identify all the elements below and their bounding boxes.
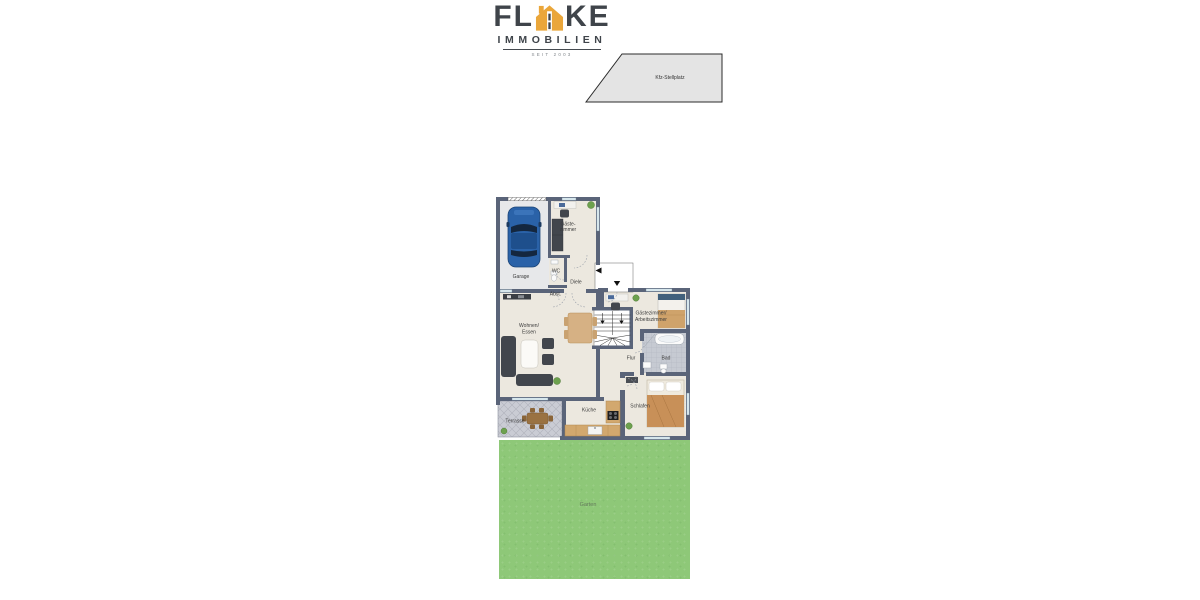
double-bed-icon	[647, 380, 684, 427]
sofa-icon	[516, 374, 553, 386]
window-icon	[687, 393, 690, 415]
label-storage: Abst.	[550, 292, 561, 298]
garden-area: Garten	[499, 440, 690, 579]
chair-icon	[564, 317, 569, 326]
plant-icon	[633, 295, 639, 301]
chair-icon	[611, 303, 620, 311]
label-guest-room-2: zimmer	[560, 227, 577, 233]
garage-door-icon	[508, 198, 546, 201]
brand-wordmark: FL KE	[492, 2, 612, 32]
car-icon	[507, 207, 542, 267]
plant-icon	[626, 423, 632, 429]
label-terrace: Terrasse	[505, 419, 524, 425]
window-icon	[646, 289, 672, 292]
window-icon	[500, 290, 512, 293]
window-icon	[597, 207, 600, 231]
parking-area: Kfz-Stellplatz	[584, 52, 726, 105]
garden-label: Garten	[580, 502, 597, 508]
label-entry-hall: Diele	[570, 280, 582, 286]
dining-table-icon	[568, 313, 592, 343]
stove-icon	[608, 411, 619, 420]
plant-icon	[554, 378, 561, 385]
armchair-icon	[542, 354, 554, 365]
brand-logo: FL KE IMMOBILIEN SEIT 2003	[492, 2, 612, 57]
sink-icon	[588, 427, 602, 435]
label-kitchen: Küche	[582, 408, 596, 414]
label-garage: Garage	[513, 274, 530, 280]
window-icon	[562, 198, 576, 201]
wordmark-right: KE	[565, 2, 611, 32]
label-living-1: Wohnen/	[519, 323, 540, 329]
parking-shape	[586, 54, 722, 102]
plant-icon	[588, 202, 595, 209]
window-icon	[687, 299, 690, 325]
label-hallway: Flur	[627, 356, 636, 362]
terrace-door-icon	[512, 398, 548, 401]
label-bedroom: Schlafen	[630, 404, 650, 410]
label-bath: Bad	[662, 356, 671, 362]
house-icon	[535, 4, 564, 32]
plant-icon	[501, 428, 507, 434]
brand-subtitle: IMMOBILIEN	[492, 34, 612, 46]
real-estate-floorplan-page: FL KE IMMOBILIEN SEIT 2003 Kfz-Stellplat…	[0, 0, 1200, 600]
chair-icon	[593, 330, 598, 339]
parking-label: Kfz-Stellplatz	[655, 75, 685, 81]
floor-plan: Garage Gäste- zimmer WC Diele Abst. Wohn…	[496, 197, 690, 440]
sofa-icon	[501, 336, 516, 377]
label-guest-office-2: Arbeitszimmer	[635, 317, 667, 323]
label-living-2: Essen	[522, 330, 536, 336]
entrance-area	[595, 263, 633, 292]
chair-icon	[560, 210, 569, 218]
toilet-icon	[660, 364, 667, 369]
coffee-table-icon	[521, 340, 538, 368]
chair-icon	[593, 317, 598, 326]
sink-icon	[551, 260, 558, 264]
armchair-icon	[542, 338, 554, 349]
wordmark-left: FL	[493, 2, 534, 32]
sink-icon	[643, 362, 651, 368]
chair-icon	[564, 330, 569, 339]
label-wc: WC	[552, 269, 561, 275]
window-icon	[644, 437, 670, 440]
label-guest-office-1: Gästezimmer/	[635, 311, 667, 317]
